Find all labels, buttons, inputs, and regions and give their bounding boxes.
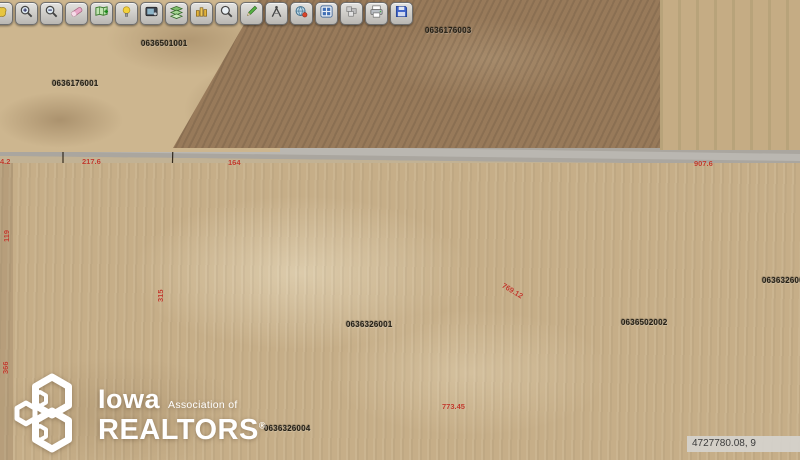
dimension-label: 217.6 [82, 157, 101, 166]
identify-icon [119, 4, 134, 24]
parcel-id-label[interactable]: 0636326004 [264, 424, 311, 433]
locate-button[interactable] [290, 2, 313, 25]
dimension-label: 315 [156, 289, 165, 302]
coordinate-readout: 4727780.08, 9 [687, 436, 800, 452]
eraser-icon [69, 4, 84, 24]
dimension-label: 119 [2, 230, 11, 242]
draw-icon [244, 4, 259, 24]
logo-realtors-text: REALTORS® [98, 416, 266, 445]
logo-association-text: Association of [168, 400, 238, 411]
pan-button[interactable] [0, 2, 13, 25]
parcel-id-label[interactable]: 0636176001 [52, 79, 99, 88]
eraser-button[interactable] [65, 2, 88, 25]
map-add-button[interactable] [90, 2, 113, 25]
logo-iowa-text: Iowa [98, 386, 160, 413]
parcels-button[interactable] [340, 2, 363, 25]
screenshot-button[interactable] [140, 2, 163, 25]
measure-button[interactable] [265, 2, 288, 25]
grid-button[interactable] [315, 2, 338, 25]
dimension-label: 773.45 [442, 402, 465, 411]
parcel-id-label[interactable]: 0636326001 [346, 320, 393, 329]
parcel-id-label[interactable]: 0636502002 [621, 318, 668, 327]
map-add-icon [94, 4, 109, 24]
dimension-label: 164 [228, 158, 241, 167]
locate-icon [294, 4, 309, 24]
search-button[interactable] [215, 2, 238, 25]
pan-icon [0, 4, 9, 24]
iowa-realtors-watermark: Iowa Association of REALTORS® [8, 370, 266, 454]
draw-button[interactable] [240, 2, 263, 25]
map-canvas[interactable]: 0636501001063617600306361760010636326001… [0, 0, 800, 460]
zoom-in-button[interactable] [15, 2, 38, 25]
parcels-icon [344, 4, 359, 24]
layers-button[interactable] [165, 2, 188, 25]
layers-icon [169, 4, 184, 24]
search-icon [219, 4, 234, 24]
buildings-button[interactable] [190, 2, 213, 25]
registered-mark: ® [259, 420, 266, 430]
save-button[interactable] [390, 2, 413, 25]
measure-icon [269, 4, 284, 24]
toolbar [0, 2, 413, 25]
parcel-id-label[interactable]: 0636326002 [762, 276, 800, 285]
iowa-realtors-logo-icon [8, 370, 88, 454]
save-icon [394, 4, 409, 24]
dimension-label: 907.6 [694, 159, 713, 168]
parcel-id-label[interactable]: 0636176003 [425, 26, 472, 35]
grid-icon [319, 4, 334, 24]
print-icon [369, 4, 384, 24]
parcel-id-label[interactable]: 0636501001 [141, 39, 188, 48]
buildings-icon [194, 4, 209, 24]
zoom-out-icon [44, 4, 59, 24]
field-top-right [660, 0, 800, 150]
zoom-in-icon [19, 4, 34, 24]
dimension-label: 4.2 [0, 157, 10, 166]
identify-button[interactable] [115, 2, 138, 25]
zoom-out-button[interactable] [40, 2, 63, 25]
screenshot-icon [144, 4, 159, 24]
print-button[interactable] [365, 2, 388, 25]
